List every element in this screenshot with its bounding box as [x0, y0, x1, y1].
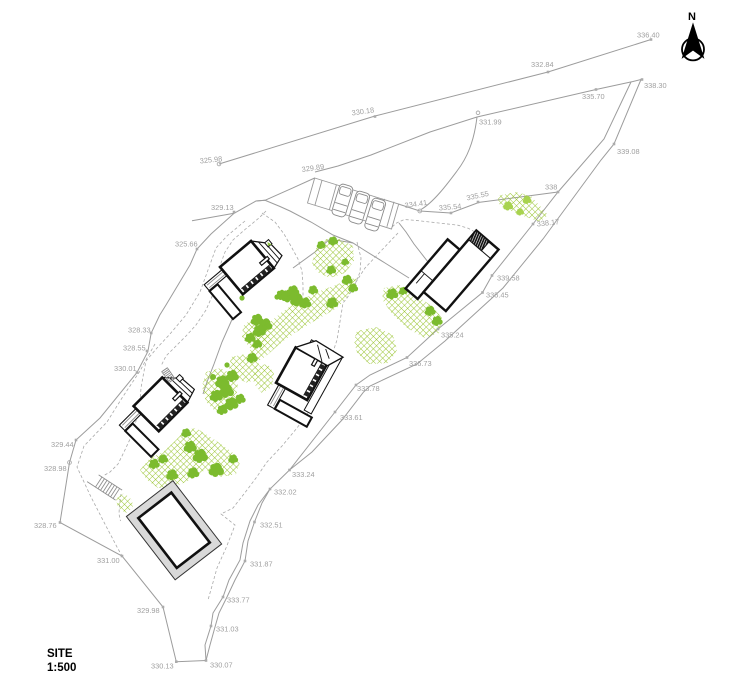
svg-text:331.87: 331.87 — [250, 560, 273, 569]
svg-text:336.73: 336.73 — [409, 359, 432, 368]
svg-text:333.77: 333.77 — [227, 596, 250, 605]
svg-text:329.13: 329.13 — [211, 203, 234, 212]
svg-text:338.30: 338.30 — [644, 81, 667, 90]
svg-text:331.00: 331.00 — [97, 556, 120, 565]
svg-text:330.01: 330.01 — [114, 364, 137, 373]
svg-text:328.55: 328.55 — [123, 344, 146, 353]
svg-text:336.40: 336.40 — [637, 31, 660, 40]
svg-text:339.58: 339.58 — [497, 274, 520, 283]
svg-text:328.76: 328.76 — [34, 521, 57, 530]
svg-text:328.33: 328.33 — [128, 326, 151, 335]
svg-text:333.61: 333.61 — [340, 413, 363, 422]
svg-text:329.98: 329.98 — [137, 606, 160, 615]
svg-text:325.66: 325.66 — [175, 240, 198, 249]
svg-text:SITE: SITE — [47, 648, 73, 660]
svg-text:339.08: 339.08 — [617, 147, 640, 156]
svg-text:331.03: 331.03 — [216, 625, 239, 634]
svg-text:333.78: 333.78 — [357, 384, 380, 393]
svg-text:333.24: 333.24 — [292, 470, 315, 479]
svg-text:335.24: 335.24 — [441, 331, 464, 340]
svg-text:329.44: 329.44 — [51, 440, 74, 449]
svg-text:N: N — [688, 11, 696, 23]
svg-text:332.51: 332.51 — [260, 521, 283, 530]
svg-text:328.98: 328.98 — [44, 464, 67, 473]
svg-text:335.70: 335.70 — [582, 92, 605, 101]
svg-text:338: 338 — [545, 183, 557, 192]
svg-text:332.02: 332.02 — [274, 488, 297, 497]
svg-text:335.45: 335.45 — [486, 291, 509, 300]
svg-text:330.13: 330.13 — [151, 662, 174, 671]
svg-text:332.84: 332.84 — [531, 60, 554, 69]
svg-text:331.99: 331.99 — [479, 118, 502, 127]
svg-text:1:500: 1:500 — [47, 662, 76, 674]
svg-text:330.07: 330.07 — [210, 661, 233, 670]
